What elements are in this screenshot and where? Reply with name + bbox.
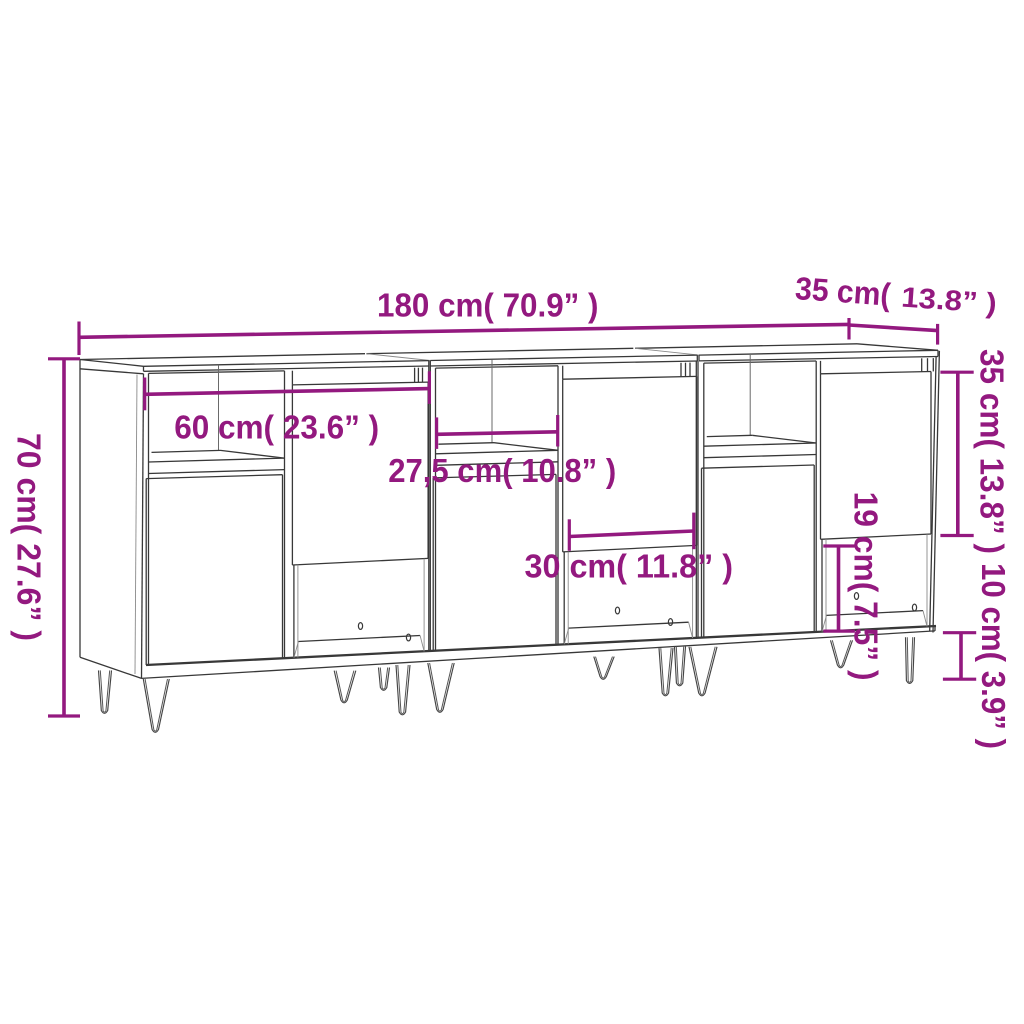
svg-text:35 cm(: 35 cm( <box>794 270 892 313</box>
svg-text:35 cm( 13.8” ): 35 cm( 13.8” ) <box>974 349 1011 554</box>
svg-text:10 cm( 3.9” ): 10 cm( 3.9” ) <box>975 563 1012 749</box>
svg-text:70 cm( 27.6” ): 70 cm( 27.6” ) <box>11 433 48 641</box>
svg-text:180 cm( 70.9” ): 180 cm( 70.9” ) <box>377 287 599 324</box>
svg-text:27,5 cm( 10.8” ): 27,5 cm( 10.8” ) <box>388 452 616 489</box>
svg-text:30 cm( 11.8” ): 30 cm( 11.8” ) <box>525 548 734 585</box>
svg-text:60 cm( 23.6” ): 60 cm( 23.6” ) <box>174 409 379 446</box>
svg-text:13.8” ): 13.8” ) <box>900 282 997 321</box>
svg-text:19 cm( 7.5” ): 19 cm( 7.5” ) <box>848 492 885 681</box>
